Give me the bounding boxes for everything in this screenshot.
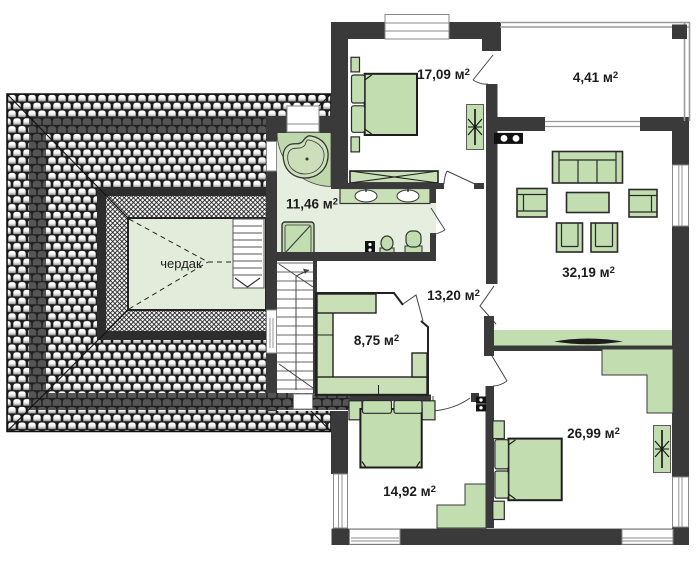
- svg-text:32,19 м2: 32,19 м2: [562, 265, 615, 280]
- svg-text:чердак: чердак: [160, 256, 202, 271]
- svg-text:8,75 м2: 8,75 м2: [354, 333, 399, 348]
- svg-text:17,09 м2: 17,09 м2: [417, 67, 470, 82]
- svg-text:11,46 м2: 11,46 м2: [286, 197, 338, 212]
- svg-text:26,99 м2: 26,99 м2: [567, 426, 620, 441]
- svg-text:4,41 м2: 4,41 м2: [573, 70, 618, 85]
- svg-text:13,20 м2: 13,20 м2: [427, 288, 480, 303]
- svg-text:14,92 м2: 14,92 м2: [383, 484, 436, 499]
